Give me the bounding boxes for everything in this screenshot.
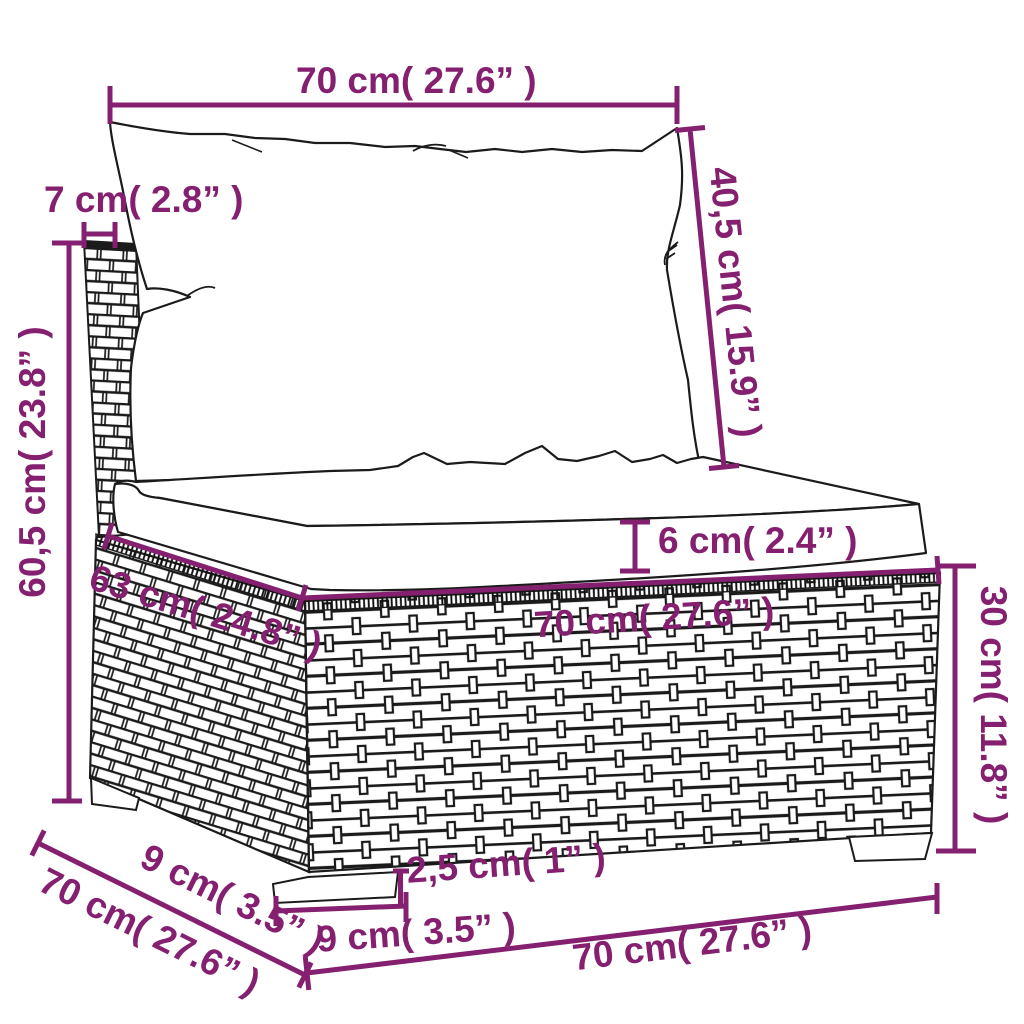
svg-text:70 cm( 27.6” ): 70 cm( 27.6” ) bbox=[296, 60, 537, 101]
svg-text:7 cm( 2.8” ): 7 cm( 2.8” ) bbox=[44, 179, 243, 220]
svg-text:6 cm( 2.4” ): 6 cm( 2.4” ) bbox=[658, 520, 857, 561]
svg-text:60,5 cm( 23.8” ): 60,5 cm( 23.8” ) bbox=[12, 326, 53, 597]
svg-text:30 cm( 11.8” ): 30 cm( 11.8” ) bbox=[973, 586, 1014, 825]
